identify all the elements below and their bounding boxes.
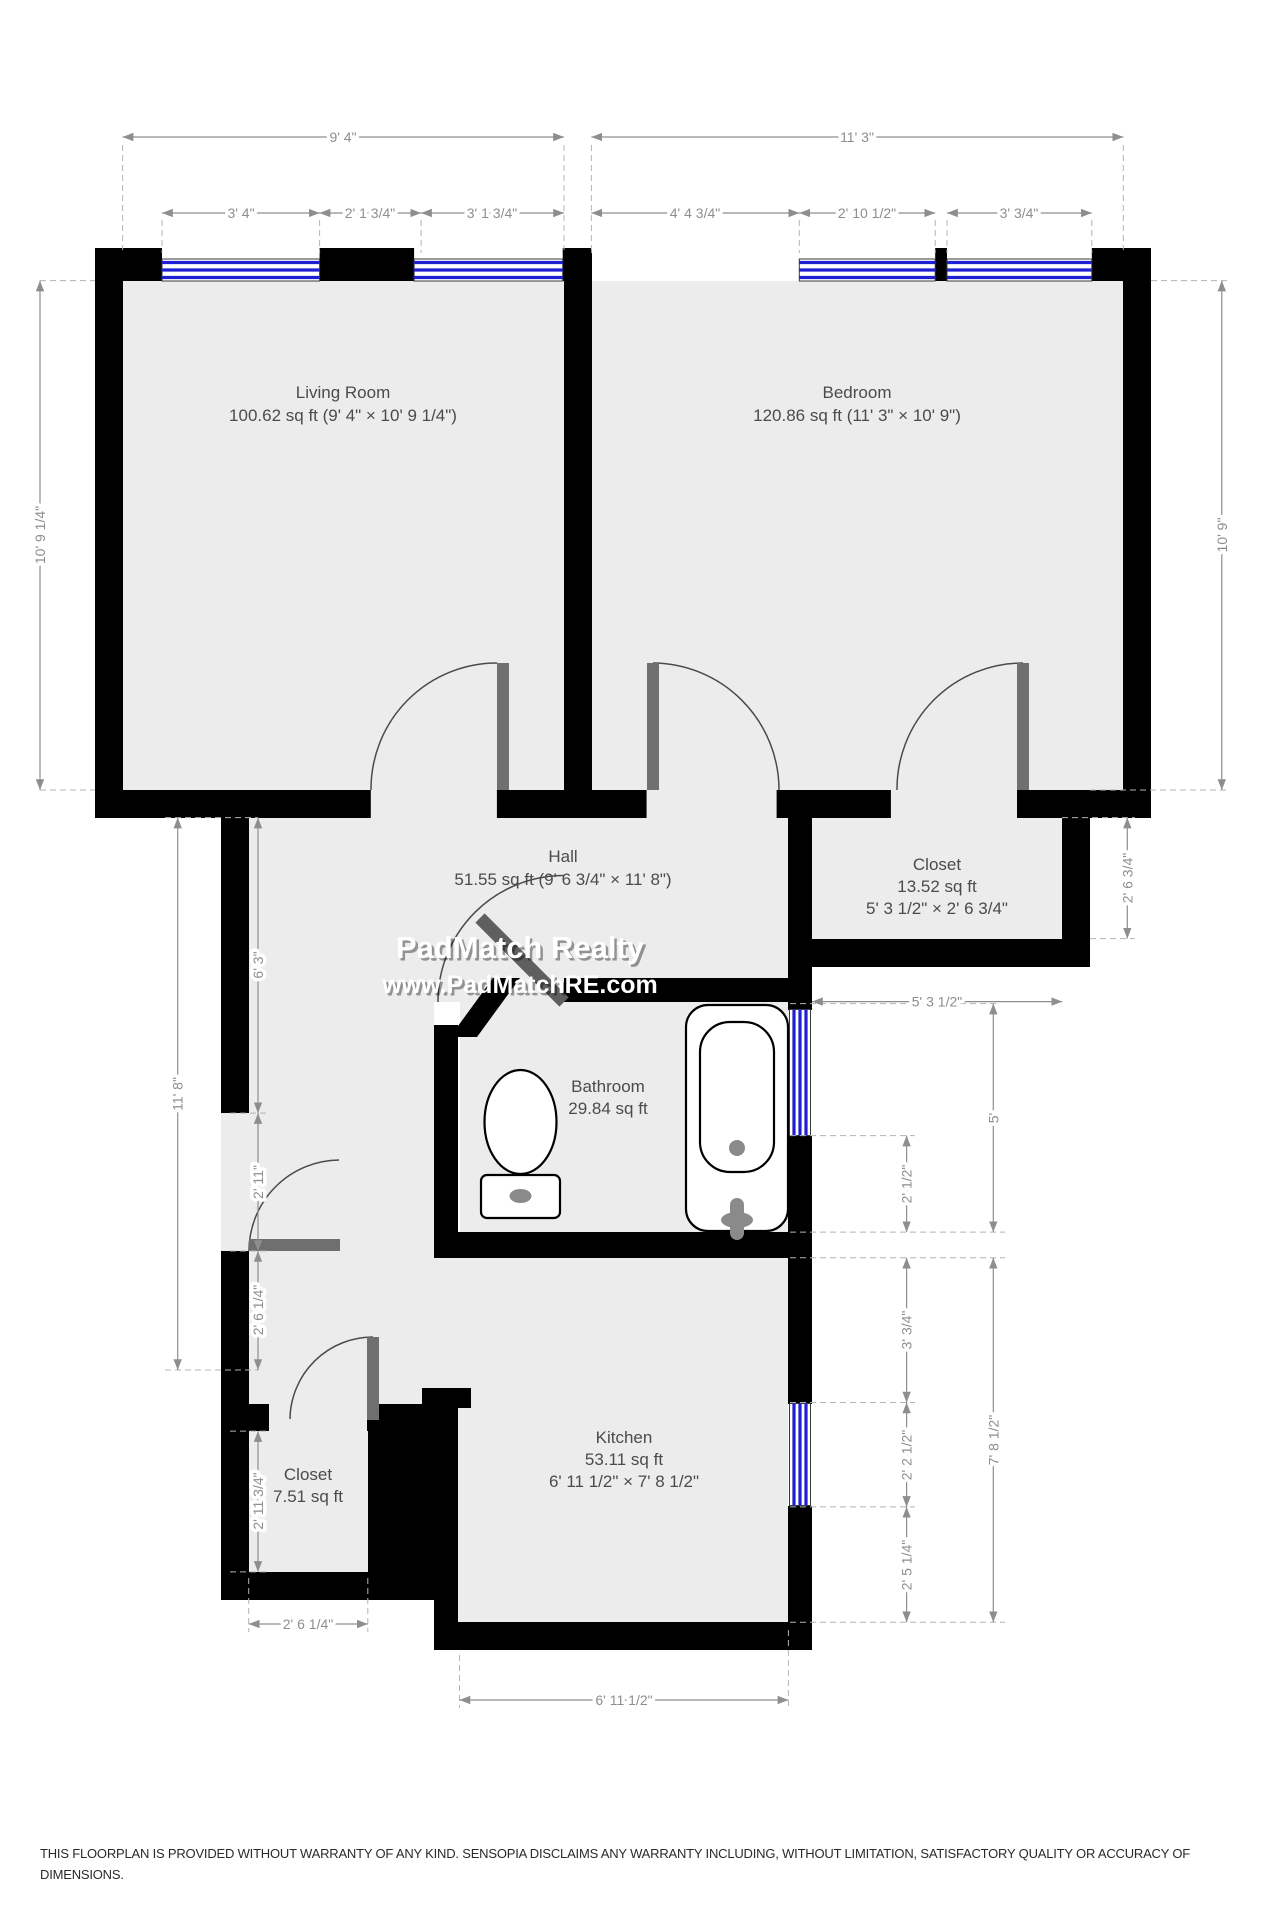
hall-area: 51.55 sq ft (9' 6 3/4" × 11' 8") [454,870,671,889]
kitchen-area: 53.11 sq ft [585,1450,663,1469]
dim-label: 2' 11" [250,1165,266,1199]
bathroom-name: Bathroom [571,1077,645,1096]
disclaimer: THIS FLOORPLAN IS PROVIDED WITHOUT WARRA… [40,1846,1190,1882]
dim-label: 3' 3/4" [899,1311,915,1350]
watermark-line1: PadMatch Realty [396,930,645,965]
closet-top-name: Closet [913,855,961,874]
dim-label: 2' 1 3/4" [345,205,395,221]
dim-label: 2' 2 1/2" [899,1430,915,1480]
dim-label: 11' 3" [840,129,874,145]
window-living-2 [414,259,563,281]
floorplan-svg: 9' 4" 11' 3" 3' 4" 2' 1 3/4" 3' 1 3/4" 4… [0,0,1280,1920]
dim-label: 6' 11 1/2" [595,1692,652,1708]
closet-top-dims: 5' 3 1/2" × 2' 6 3/4" [866,899,1008,918]
closet-bottom-name: Closet [284,1465,332,1484]
dim-label: 2' 6 3/4" [1119,853,1135,903]
dim-label: 10' 9" [1214,518,1230,553]
hall-name: Hall [548,847,577,866]
disclaimer-line1: THIS FLOORPLAN IS PROVIDED WITHOUT WARRA… [40,1846,1190,1861]
dim-label: 5' [985,1113,1001,1123]
dim-label: 3' 4" [227,205,254,221]
dim-label: 6' 3" [250,951,266,978]
closet-bottom-area: 7.51 sq ft [273,1487,343,1506]
bedroom-area: 120.86 sq ft (11' 3" × 10' 9") [753,406,961,425]
watermark-line2: www.PadMatchRE.com [381,971,658,999]
kitchen-dims: 6' 11 1/2" × 7' 8 1/2" [549,1472,699,1491]
living-room-name: Living Room [296,383,391,402]
dim-label: 9' 4" [329,129,356,145]
watermark: PadMatch Realty PadMatch Realty www.PadM… [381,930,660,1002]
bedroom-name: Bedroom [823,383,892,402]
dim-label: 7' 8 1/2" [985,1415,1001,1465]
dim-label: 3' 1 3/4" [467,205,517,221]
dim-label: 10' 9 1/4" [32,506,48,564]
dim-label: 2' 1/2" [899,1165,915,1204]
dim-label: 3' 3/4" [1000,205,1039,221]
dim-label: 5' 3 1/2" [912,994,962,1010]
window-bedroom-1 [799,259,935,281]
dim-label: 2' 6 1/4" [250,1285,266,1335]
window-bedroom-2 [947,259,1092,281]
window-bathroom [790,1010,811,1136]
bathtub-icon [686,1005,788,1240]
dim-label: 2' 6 1/4" [283,1616,333,1632]
dim-label: 2' 5 1/4" [899,1540,915,1590]
living-room-area: 100.62 sq ft (9' 4" × 10' 9 1/4") [229,406,457,425]
kitchen-name: Kitchen [596,1428,653,1447]
dim-label: 4' 4 3/4" [670,205,720,221]
window-living-1 [162,259,320,281]
toilet-icon [481,1070,560,1218]
window-kitchen [790,1404,811,1506]
bathroom-area: 29.84 sq ft [568,1099,648,1118]
dim-label: 2' 11 3/4" [250,1472,266,1529]
disclaimer-line2: DIMENSIONS. [40,1867,124,1882]
dim-label: 2' 10 1/2" [838,205,896,221]
dim-label: 11' 8" [170,1077,186,1111]
closet-top-area: 13.52 sq ft [897,877,977,896]
